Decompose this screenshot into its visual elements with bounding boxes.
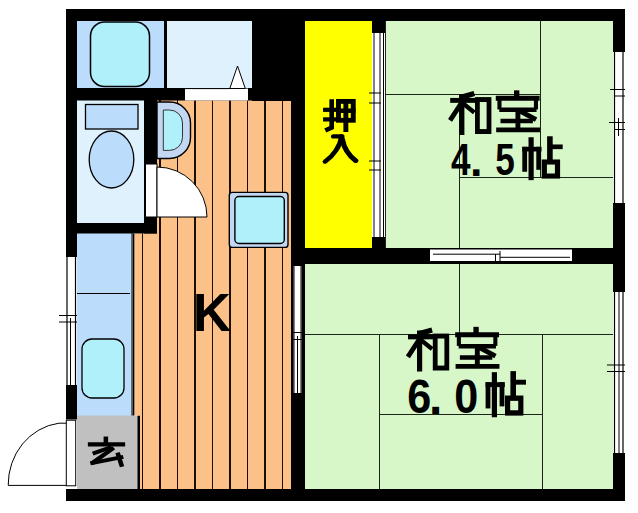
svg-text:5: 5 (495, 134, 515, 185)
svg-text:.: . (470, 135, 483, 186)
svg-text:4: 4 (451, 134, 471, 185)
svg-text:6: 6 (407, 370, 431, 424)
svg-text:0: 0 (454, 370, 478, 424)
svg-text:K: K (193, 283, 231, 342)
svg-text:.: . (429, 371, 442, 424)
